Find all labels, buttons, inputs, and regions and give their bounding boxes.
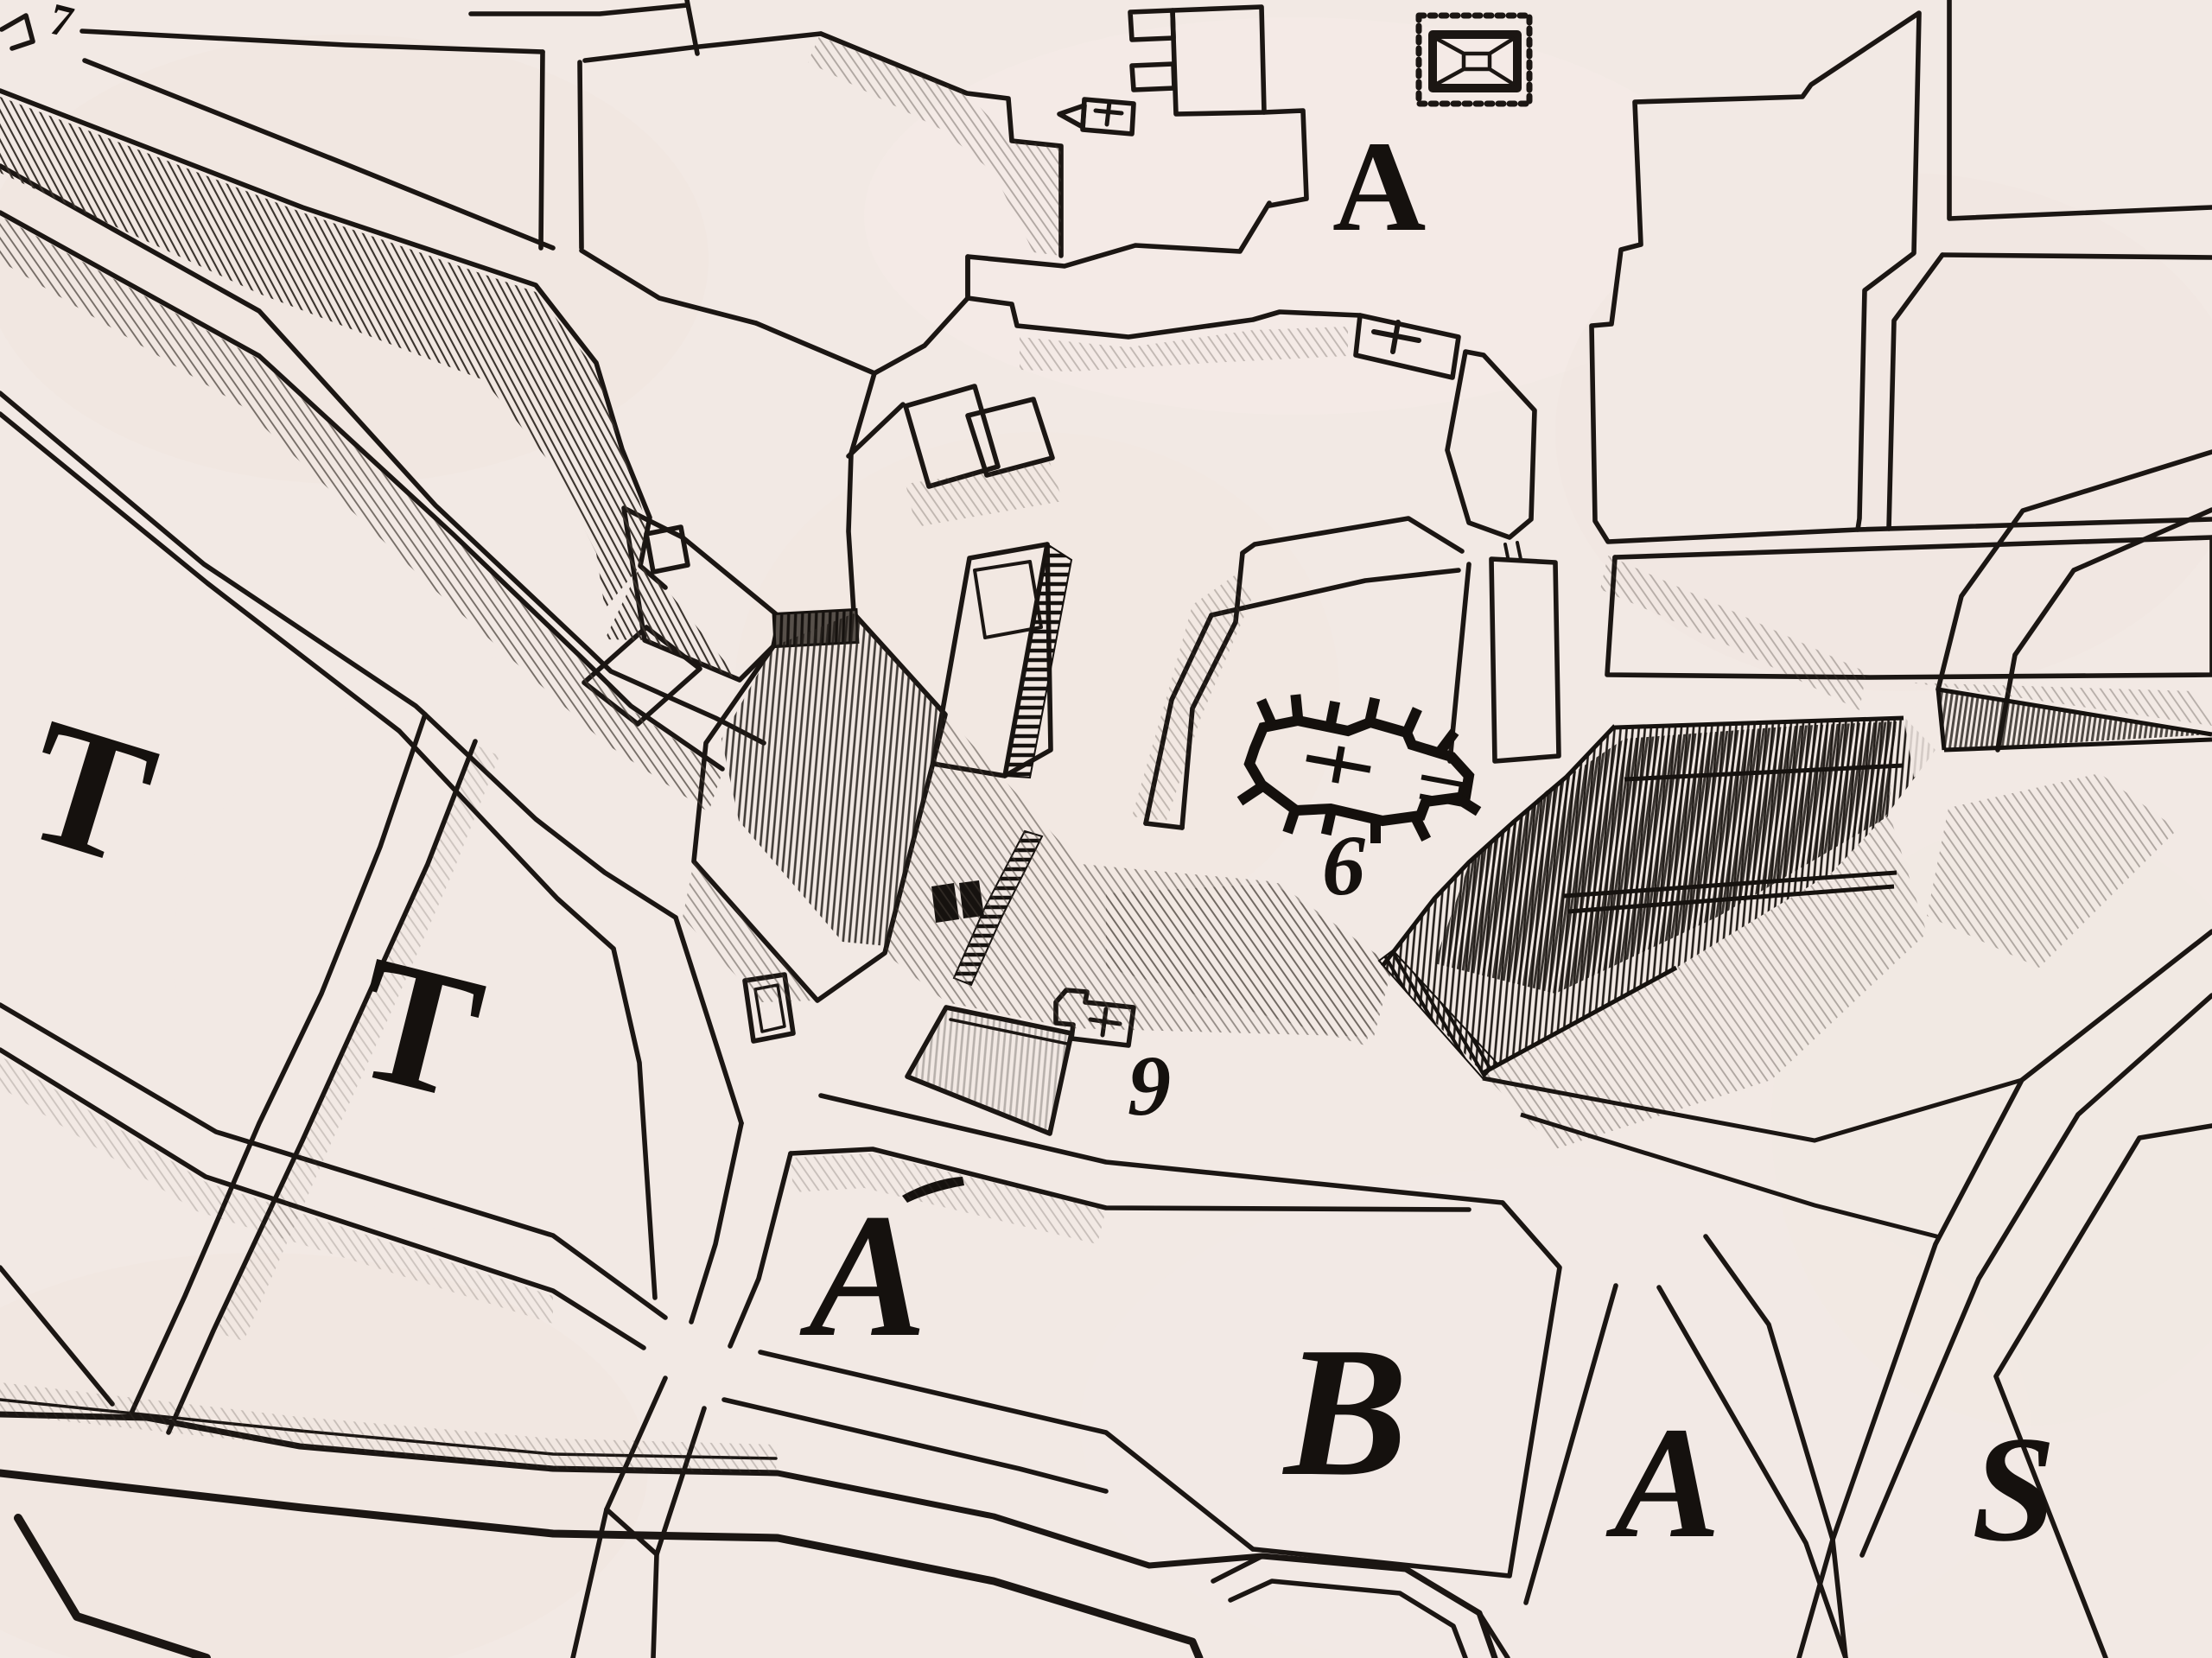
svg-text:9: 9	[1128, 1038, 1171, 1134]
svg-text:6: 6	[1322, 817, 1365, 913]
svg-text:S: S	[1972, 1405, 2056, 1572]
svg-text:A: A	[1332, 115, 1426, 258]
svg-text:A: A	[799, 1178, 927, 1374]
svg-text:A: A	[1605, 1394, 1720, 1572]
svg-text:B: B	[1282, 1308, 1408, 1515]
